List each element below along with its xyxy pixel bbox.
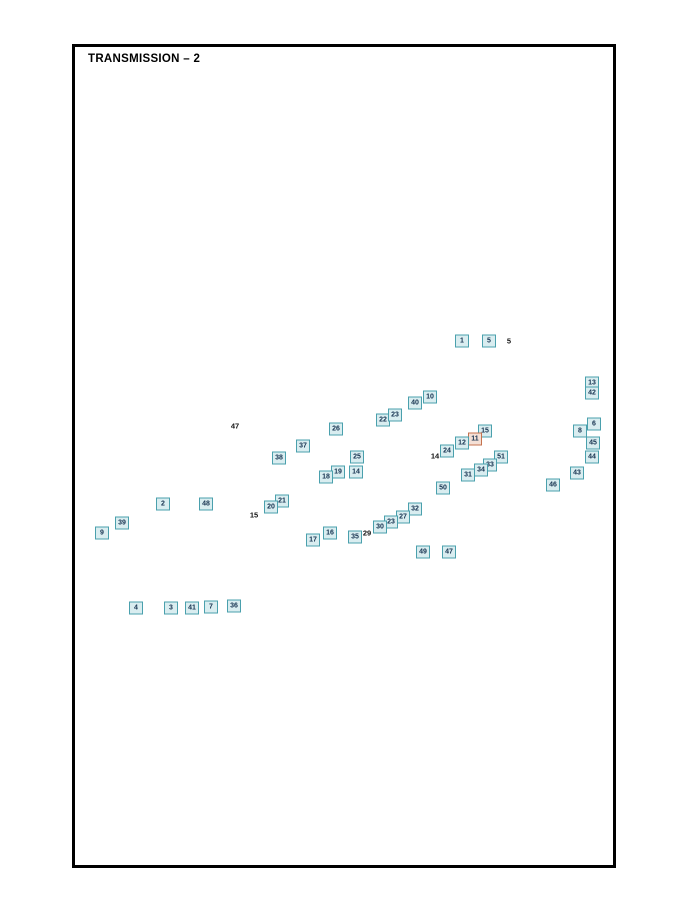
callout-43: 43 — [570, 467, 584, 480]
callout-20: 20 — [264, 501, 278, 514]
callout-26: 26 — [329, 423, 343, 436]
callout-17: 17 — [306, 534, 320, 547]
callout-36: 36 — [227, 600, 241, 613]
callout-45: 45 — [586, 437, 600, 450]
callout-31: 31 — [461, 469, 475, 482]
callout-41: 41 — [185, 602, 199, 615]
callout-12: 12 — [455, 437, 469, 450]
callout-49: 49 — [416, 546, 430, 559]
callout-50: 50 — [436, 482, 450, 495]
callout-14: 14 — [431, 452, 439, 461]
callout-7: 7 — [204, 601, 218, 614]
parts-catalog-page: TRANSMISSION – 2 15510401342684544434622… — [0, 0, 688, 900]
callout-34: 34 — [474, 464, 488, 477]
callout-42: 42 — [585, 387, 599, 400]
callout-19: 19 — [331, 466, 345, 479]
callout-44: 44 — [585, 451, 599, 464]
callout-35: 35 — [348, 531, 362, 544]
callout-8: 8 — [573, 425, 587, 438]
callout-39: 39 — [115, 517, 129, 530]
callout-32: 32 — [408, 503, 422, 516]
callout-3: 3 — [164, 602, 178, 615]
callout-14: 14 — [349, 466, 363, 479]
callout-4: 4 — [129, 602, 143, 615]
callout-6: 6 — [587, 418, 601, 431]
callout-47: 47 — [442, 546, 456, 559]
callout-11: 11 — [468, 433, 482, 446]
callout-5: 5 — [482, 335, 496, 348]
callout-46: 46 — [546, 479, 560, 492]
callout-29: 29 — [363, 529, 371, 538]
callout-24: 24 — [440, 445, 454, 458]
callout-2: 2 — [156, 498, 170, 511]
callout-38: 38 — [272, 452, 286, 465]
callout-23: 23 — [388, 409, 402, 422]
callout-1: 1 — [455, 335, 469, 348]
callout-16: 16 — [323, 527, 337, 540]
callout-27: 27 — [396, 511, 410, 524]
callout-9: 9 — [95, 527, 109, 540]
callout-15: 15 — [250, 511, 258, 520]
callout-5: 5 — [507, 337, 511, 346]
callout-48: 48 — [199, 498, 213, 511]
callout-30: 30 — [373, 521, 387, 534]
callout-37: 37 — [296, 440, 310, 453]
callout-40: 40 — [408, 397, 422, 410]
callout-10: 10 — [423, 391, 437, 404]
callout-layer: 1551040134268454443462223264737382519141… — [0, 0, 688, 900]
callout-25: 25 — [350, 451, 364, 464]
callout-47: 47 — [231, 422, 239, 431]
callout-18: 18 — [319, 471, 333, 484]
